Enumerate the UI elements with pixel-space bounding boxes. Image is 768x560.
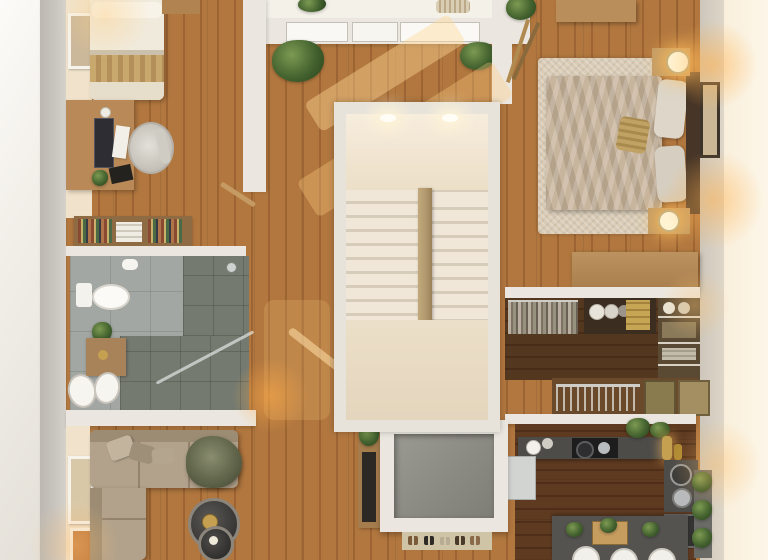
shoes-pair: [455, 536, 465, 545]
palm-plant-left: [272, 40, 324, 82]
outer-wall-left: [40, 0, 66, 560]
room-closet: [505, 287, 700, 380]
island-plant: [566, 522, 583, 537]
pan: [598, 442, 610, 454]
folded-stack: [662, 348, 696, 360]
plate: [542, 438, 553, 449]
ceiling-light: [380, 114, 396, 122]
island-plant: [642, 522, 659, 537]
lower-landing: [346, 320, 488, 420]
toilet-cistern: [76, 283, 92, 307]
corner-sofa-vertical: [90, 488, 146, 560]
mug: [100, 107, 111, 118]
glass-door-panel: [352, 22, 398, 42]
ledge-books: [78, 219, 112, 243]
stair-flight-left: [346, 190, 418, 320]
bathroom-south-wall: [66, 410, 256, 426]
wet-zone: [120, 336, 249, 412]
shoes-pair: [470, 536, 480, 545]
gold-pillow: [615, 116, 650, 155]
bed-foot: [90, 82, 164, 100]
gold-stack: [626, 300, 650, 330]
glass-door-panel: [286, 22, 348, 42]
lounge-chair: [436, 0, 470, 13]
vestibule-floor: [394, 434, 494, 518]
single-bed: [90, 0, 164, 100]
lamp-north: [666, 50, 690, 74]
rolled-towel: [678, 302, 690, 314]
towel-roll: [604, 304, 619, 319]
towel-roll: [589, 304, 605, 320]
sofa-arm: [90, 488, 102, 560]
room-living: [66, 426, 336, 560]
room-bathroom: [66, 256, 254, 426]
gold-tray: [98, 350, 108, 360]
garden-tuft: [692, 528, 712, 548]
gold-bottle: [674, 444, 682, 460]
shelf-line: [658, 364, 700, 366]
gold-throw: [90, 55, 164, 82]
room-staircase: [334, 102, 500, 432]
center-rail: [418, 188, 432, 322]
nightstand: [162, 0, 200, 14]
storage-box: [678, 380, 710, 416]
paper-roll: [122, 259, 138, 270]
shower-head: [226, 262, 237, 273]
kitchen-north-wall: [505, 414, 696, 424]
bed-pillow: [653, 79, 689, 140]
shelf-line: [658, 342, 700, 344]
hangers: [556, 387, 640, 411]
hanging-clothes: [508, 300, 578, 334]
laptop: [94, 118, 114, 168]
garden-tuft: [692, 500, 712, 520]
storage-box: [662, 322, 696, 338]
room-entry: [356, 420, 512, 560]
room-bedroom-small: [66, 0, 258, 254]
bed-pillow: [92, 2, 162, 18]
console-dark-item: [362, 452, 376, 522]
pot: [670, 464, 692, 486]
wall-art-right: [700, 82, 720, 158]
bathroom-north-wall: [66, 246, 246, 256]
exterior-ground-left: [0, 0, 40, 560]
headboard: [686, 72, 700, 214]
ledge-books: [148, 219, 182, 243]
bedroom-wall-divider: [243, 0, 266, 192]
vertical-garden: [694, 470, 712, 558]
sun-patch: [264, 300, 330, 420]
ceiling-light: [442, 114, 458, 122]
cooktop: [572, 438, 618, 458]
book-ledge: [74, 216, 192, 246]
closet-top-wall: [505, 287, 700, 298]
lamp-south: [658, 210, 680, 232]
room-kitchen: [496, 378, 700, 560]
garden-tuft: [692, 472, 712, 492]
room-master-bedroom: [500, 0, 700, 290]
bed-pillow: [654, 145, 688, 203]
pan: [672, 488, 692, 508]
rolled-towel: [663, 302, 675, 314]
plate: [526, 440, 541, 455]
wardrobe: [552, 378, 698, 414]
shoes-pair: [408, 536, 418, 545]
foot-chest: [572, 252, 698, 288]
shoes-pair: [424, 536, 434, 545]
dresser: [556, 0, 636, 22]
shoes-pair: [440, 537, 450, 545]
stair-flight-right: [432, 190, 488, 320]
toilet-bowl: [92, 284, 130, 310]
sofa-cushion: [151, 447, 175, 466]
shower-area: [183, 256, 249, 336]
ledge-white-stack: [116, 222, 142, 242]
gold-bottle: [662, 436, 672, 460]
shelf-line: [658, 316, 700, 318]
exterior-ground-right: [724, 0, 768, 560]
upper-landing: [346, 114, 488, 190]
balcony-plant: [506, 0, 536, 20]
floor-plan-render: [0, 0, 768, 560]
shelf-unit-right: [658, 298, 700, 380]
suitcase: [644, 380, 676, 416]
pot: [576, 441, 594, 459]
pampas-plant: [186, 436, 242, 488]
candle: [209, 536, 218, 545]
